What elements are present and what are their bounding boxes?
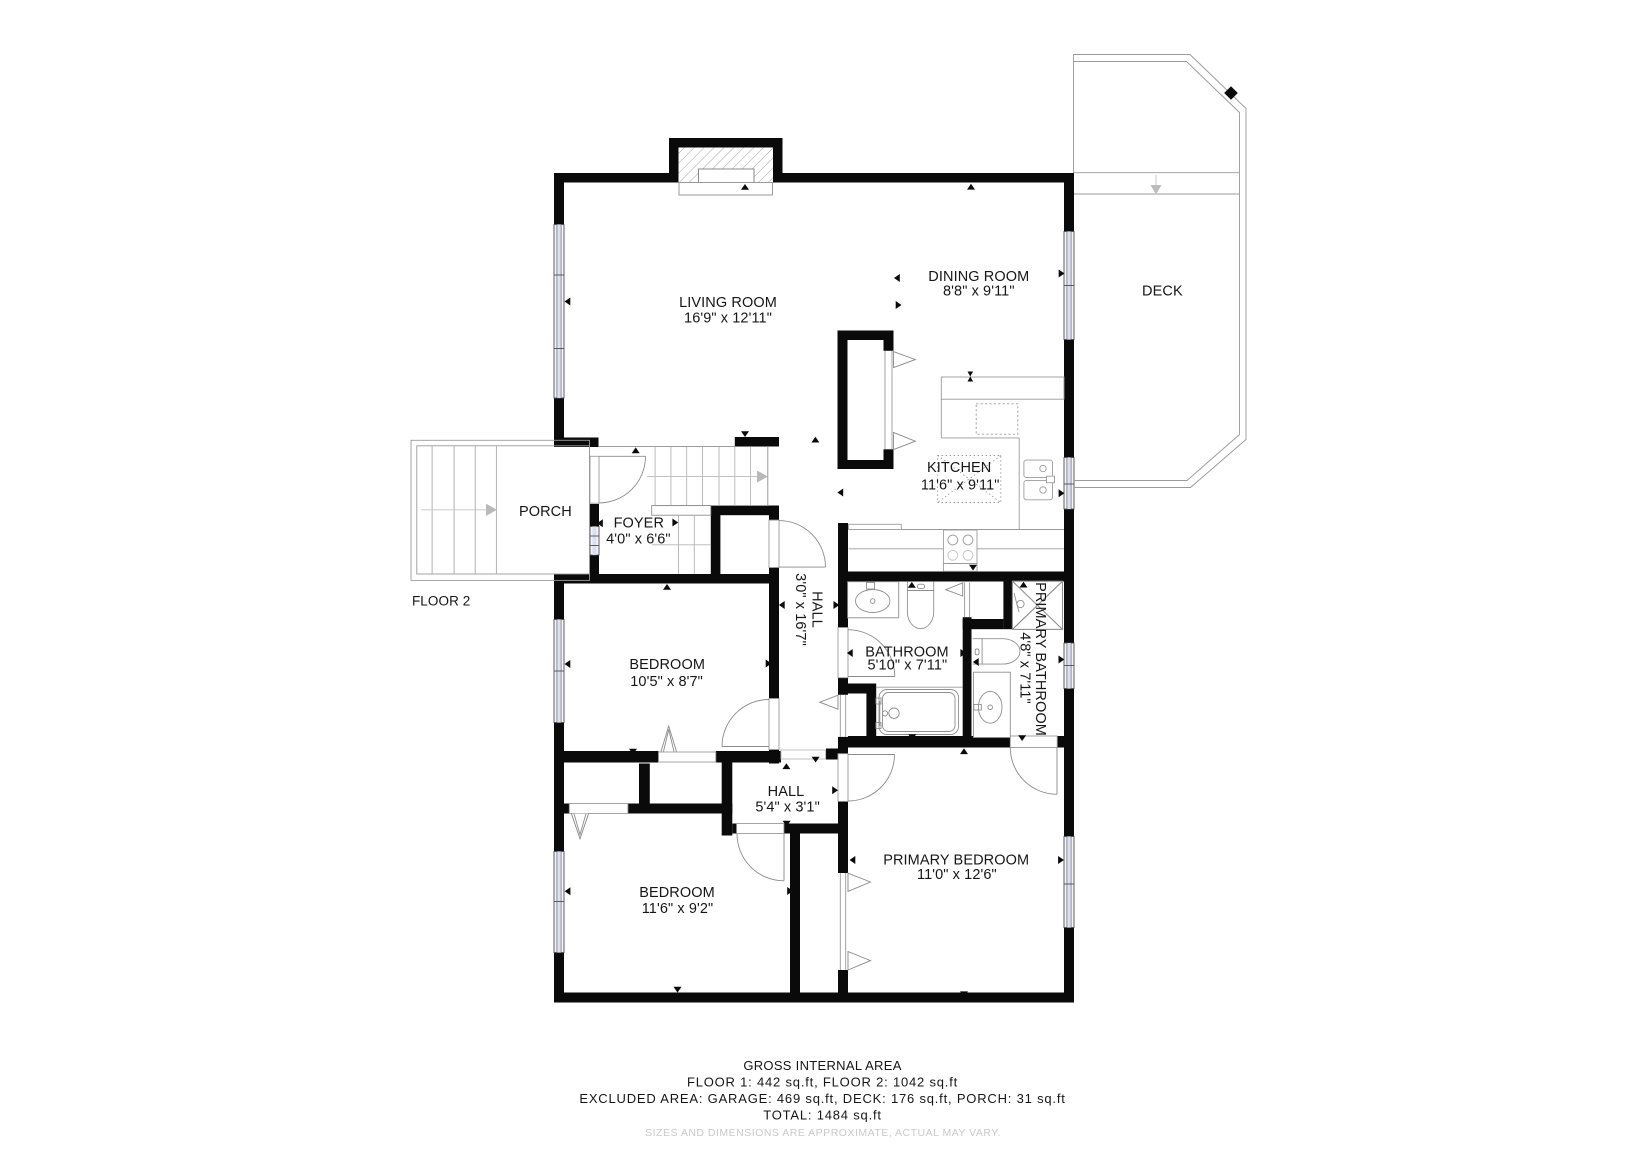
svg-text:KITCHEN: KITCHEN: [927, 460, 991, 476]
svg-text:BEDROOM: BEDROOM: [639, 885, 715, 901]
svg-text:LIVING ROOM: LIVING ROOM: [679, 295, 777, 311]
svg-text:4'0" x 6'6": 4'0" x 6'6": [606, 532, 671, 548]
svg-text:11'6" x 9'2": 11'6" x 9'2": [642, 901, 714, 917]
svg-text:10'5" x 8'7": 10'5" x 8'7": [630, 674, 703, 690]
svg-text:FLOOR 1: 442 sq.ft, FLOOR 2: 1: FLOOR 1: 442 sq.ft, FLOOR 2: 1042 sq.ft: [687, 1075, 958, 1090]
svg-text:FLOOR 2: FLOOR 2: [412, 594, 470, 609]
svg-text:HALL: HALL: [809, 591, 825, 628]
svg-text:TOTAL: 1484 sq.ft: TOTAL: 1484 sq.ft: [763, 1108, 882, 1123]
svg-text:4'8" x 7'11": 4'8" x 7'11": [1017, 632, 1033, 704]
svg-text:EXCLUDED AREA: GARAGE: 469 sq.: EXCLUDED AREA: GARAGE: 469 sq.ft, DECK: …: [579, 1091, 1065, 1106]
svg-text:3'0" x 16'7": 3'0" x 16'7": [792, 573, 808, 646]
svg-text:5'10" x 7'11": 5'10" x 7'11": [868, 658, 948, 674]
svg-text:16'9" x 12'11": 16'9" x 12'11": [684, 311, 772, 327]
svg-text:8'8" x 9'11": 8'8" x 9'11": [943, 284, 1015, 300]
svg-text:PRIMARY BATHROOM: PRIMARY BATHROOM: [1032, 582, 1048, 736]
svg-text:11'0" x 12'6": 11'0" x 12'6": [917, 867, 997, 883]
svg-text:DINING ROOM: DINING ROOM: [928, 269, 1029, 285]
svg-text:FOYER: FOYER: [614, 515, 664, 531]
svg-text:GROSS INTERNAL AREA: GROSS INTERNAL AREA: [743, 1058, 901, 1073]
svg-text:DECK: DECK: [1142, 284, 1183, 300]
svg-text:11'6" x 9'11": 11'6" x 9'11": [921, 478, 1000, 494]
svg-text:SIZES AND DIMENSIONS ARE APPRO: SIZES AND DIMENSIONS ARE APPROXIMATE, AC…: [645, 1127, 1001, 1139]
svg-text:PORCH: PORCH: [519, 504, 572, 520]
svg-text:PRIMARY BEDROOM: PRIMARY BEDROOM: [883, 853, 1029, 869]
svg-text:5'4" x 3'1": 5'4" x 3'1": [755, 800, 820, 816]
svg-text:HALL: HALL: [768, 784, 805, 800]
svg-text:BEDROOM: BEDROOM: [629, 657, 705, 673]
